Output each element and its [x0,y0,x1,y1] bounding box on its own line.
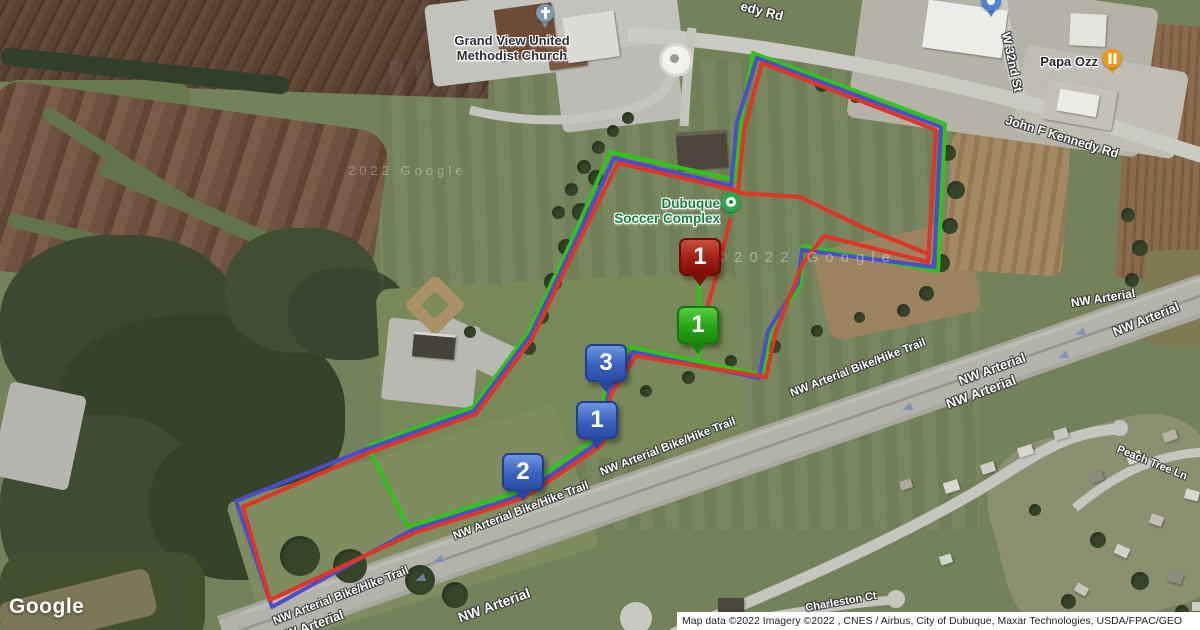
church-label[interactable]: Grand View United Methodist Church [432,34,592,63]
soccer-label-line2: Soccer Complex [550,211,720,226]
church-label-line1: Grand View United [432,34,592,49]
church-pin-head [536,4,554,22]
papa-ozz-label[interactable]: Papa Ozz [1012,55,1098,70]
marker-number: 2 [516,458,529,486]
tree [577,160,591,174]
soccer-complex-label[interactable]: Dubuque Soccer Complex [550,196,720,226]
restaurant-icon-knife [1114,53,1117,64]
decor-layer [0,0,1200,630]
tree [534,309,549,324]
house-roof [1089,470,1104,484]
house-roof [1114,544,1131,559]
papa-ozz-pin-head [1103,49,1122,68]
restaurant-icon [1109,53,1112,64]
tree [280,536,320,576]
soccer-complex-pin[interactable] [721,192,741,225]
tree [947,181,965,199]
tree [854,312,865,323]
tree [588,170,604,186]
tree [942,218,958,234]
course-marker-blue-2[interactable]: 2 [502,453,544,491]
tree [622,112,634,124]
house-roof [1192,602,1200,611]
house-roof [1149,513,1165,527]
park-icon-dot [729,200,733,204]
tree [1125,273,1139,287]
clipped-pin-dot [987,0,995,5]
course-marker-blue-3[interactable]: 3 [585,344,627,382]
house-roof [1167,570,1184,585]
tree [1121,208,1135,222]
tree [1132,240,1148,256]
lane-direction-arrow-icon [1057,351,1069,362]
house-roof [1184,488,1200,501]
lane-direction-arrow-icon [901,403,913,414]
church-pin[interactable] [536,4,554,34]
tree [333,549,367,583]
cross-icon-bar [541,10,550,13]
marker-number: 1 [590,406,603,434]
google-watermark: 2022 Google [348,163,466,178]
course-marker-green-1[interactable]: 1 [677,306,719,344]
marker-number: 1 [691,311,704,339]
tree [897,304,910,317]
lane-direction-arrow-icon [1074,328,1086,339]
house-roof [1053,427,1069,441]
house-roof [939,553,953,565]
google-watermark: ©2022 Google [716,249,897,266]
soccer-label-line1: Dubuque [550,196,720,211]
house-roof [980,461,996,475]
tree [544,273,562,291]
tree [850,91,862,103]
tree [1029,504,1041,516]
tree [932,254,950,272]
marker-number: 3 [599,349,612,377]
house-roof [899,478,913,490]
tree [919,286,934,301]
church-label-line2: Methodist Church [432,49,592,64]
papa-ozz-pin[interactable] [1103,49,1122,80]
course-marker-blue-1[interactable]: 1 [576,401,618,439]
tree [811,325,823,337]
house-roof [1074,582,1090,596]
clipped-blue-pin-head [981,0,1001,11]
tree [1061,594,1076,609]
tree [592,141,605,154]
cross-icon [544,7,547,19]
clipped-blue-pin[interactable] [981,0,1001,23]
tree [558,239,574,255]
map-attribution: Map data ©2022 Imagery ©2022 , CNES / Ai… [677,612,1200,630]
tree [1090,532,1106,548]
tree [607,125,619,137]
tree [940,145,956,161]
house-roof [943,479,961,494]
house-roof [1162,429,1179,443]
lane-direction-arrow-icon [432,555,444,566]
tree [640,385,652,397]
marker-number: 1 [693,243,706,271]
tree [442,582,468,608]
house-roof [1017,444,1034,458]
soccer-pin-head [721,192,741,212]
tree [768,340,781,353]
tree [725,355,737,367]
tree [815,78,829,92]
map-canvas[interactable]: ©2022 Google 2022 Google edy Rd W 32nd S… [0,0,1200,630]
tree [1131,572,1149,590]
tree [464,326,476,338]
tree [565,183,578,196]
tree [682,371,695,384]
course-marker-red-1[interactable]: 1 [679,238,721,276]
tree [522,341,536,355]
google-logo[interactable]: Google [9,595,84,619]
